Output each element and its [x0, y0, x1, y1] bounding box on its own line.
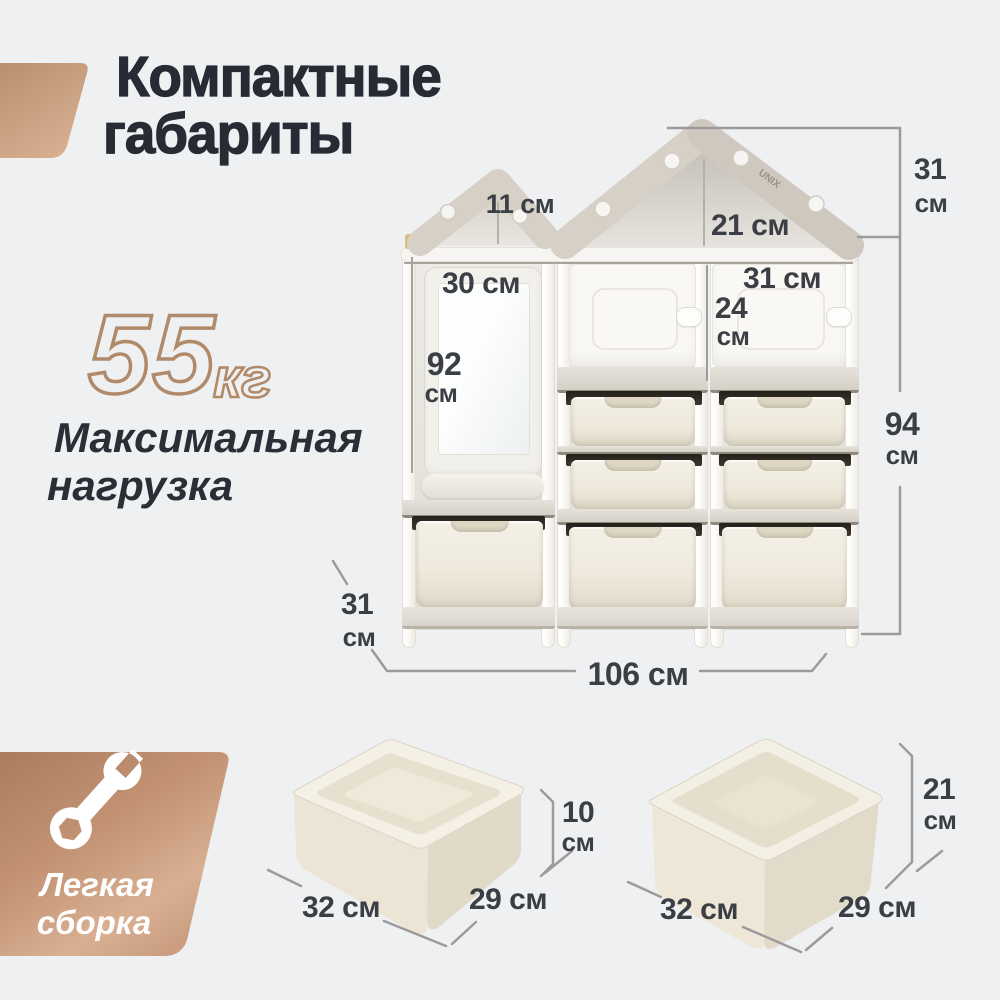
dim-body-height-num: 94 — [885, 406, 920, 443]
dim-depth-unit: см — [343, 622, 376, 653]
small-bin — [724, 460, 845, 509]
bin-handle-notch — [604, 397, 661, 408]
assembly-label-line2: сборка — [37, 904, 152, 942]
assembly-label-line1: Легкая — [40, 866, 154, 904]
frame-post — [402, 248, 416, 648]
base-bar — [402, 607, 555, 629]
max-load-value: 55 — [88, 290, 217, 419]
door-panel — [737, 288, 825, 350]
dim-tray-depth: 29 см — [469, 883, 547, 917]
corner-accent-shape — [0, 63, 88, 158]
dim-depth-num: 31 — [341, 588, 373, 622]
bin-handle-notch — [450, 521, 508, 532]
dim-board-width: 30 см — [442, 267, 520, 301]
dim-bin-height-line — [886, 744, 912, 888]
door-handle — [676, 307, 702, 327]
dim-bin-width: 32 см — [660, 893, 738, 927]
dim-door-width: 31 см — [743, 262, 821, 296]
max-load-unit: кг — [213, 345, 271, 410]
dim-tray-height-num: 10 — [562, 796, 594, 830]
bin-handle-notch — [603, 527, 661, 538]
small-bin — [571, 397, 695, 446]
page-title-line2: габариты — [103, 101, 353, 167]
base-bar — [557, 607, 708, 629]
dim-body-height-unit: см — [886, 440, 919, 471]
base-bar — [710, 607, 859, 629]
shelf-bar — [710, 367, 859, 393]
shelf-bar — [557, 367, 708, 393]
wrench-icon — [41, 740, 153, 858]
max-load-label-line2: нагрузка — [47, 462, 233, 510]
dim-door-height-unit: см — [717, 321, 750, 352]
dim-large-roof-width: 21 см — [711, 209, 789, 243]
dim-bin-height-num: 21 — [923, 773, 955, 807]
dim-bin-depth: 29 см — [838, 891, 916, 925]
marker-tray — [422, 474, 544, 498]
small-bin — [571, 460, 695, 509]
large-bin — [416, 521, 543, 607]
dim-tray-height-line — [541, 790, 553, 876]
frame-post — [541, 248, 555, 648]
bin-handle-notch — [757, 460, 813, 471]
bin-handle-notch — [604, 460, 661, 471]
top-rail — [400, 247, 860, 262]
dim-bin-height-unit: см — [924, 805, 957, 836]
dim-tray-height-unit: см — [562, 827, 595, 858]
wood-dowel — [844, 231, 853, 246]
wood-dowel — [405, 234, 414, 249]
large-bin — [722, 527, 847, 609]
large-bin — [569, 527, 696, 609]
small-bin — [724, 397, 845, 446]
bin-handle-notch — [756, 527, 814, 538]
max-load-label-line1: Максимальная — [54, 414, 363, 462]
dim-small-roof-width: 11 см — [486, 189, 555, 220]
dim-total-width: 106 см — [588, 656, 689, 693]
dim-board-height-unit: см — [425, 378, 458, 409]
dim-tray-width: 32 см — [302, 891, 380, 925]
large-roof — [565, 134, 849, 245]
brand-logo: UNIX — [756, 168, 782, 191]
dim-roof-height-num: 31 — [914, 153, 946, 187]
door-panel — [592, 288, 678, 350]
door-handle — [826, 307, 852, 327]
wood-dowel — [553, 234, 562, 247]
infographic-canvas: UNIX — [0, 0, 1000, 1000]
dim-roof-height-unit: см — [915, 188, 948, 219]
bin-handle-notch — [757, 397, 813, 408]
